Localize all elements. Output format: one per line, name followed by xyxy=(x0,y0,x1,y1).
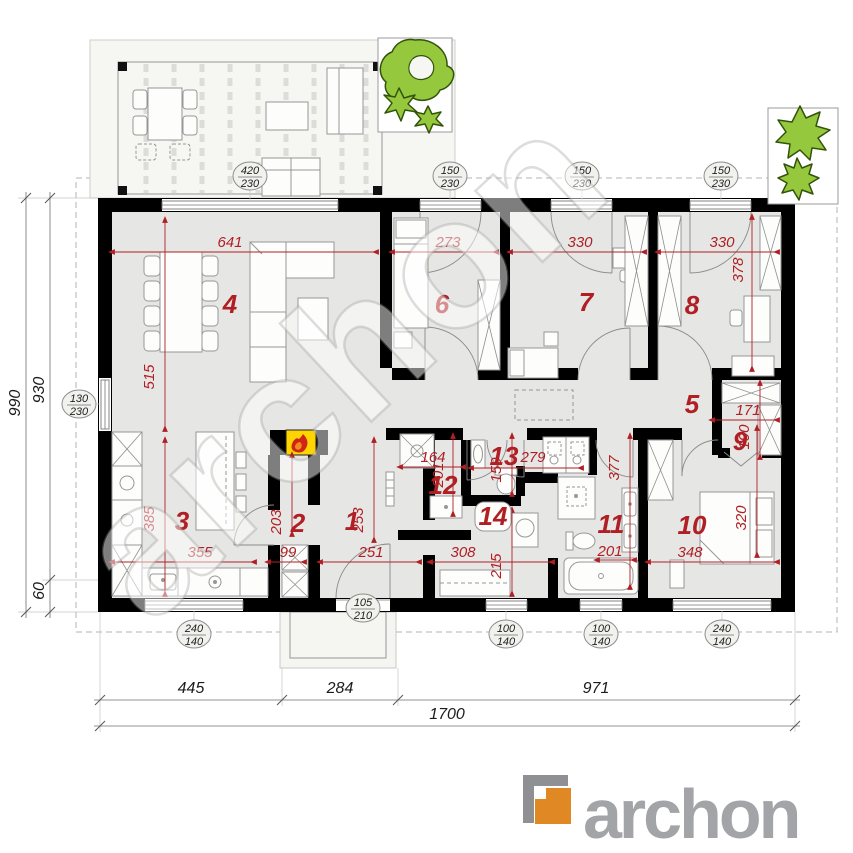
tag-240-140-b: 240140 xyxy=(705,611,739,648)
dim-215: 215 xyxy=(488,553,505,580)
floor-plan-canvas: 641 515 273 330 330 378 385 355 99 251 2… xyxy=(0,0,853,853)
dim-308: 308 xyxy=(450,544,476,561)
wardrobe-room8b xyxy=(760,216,781,290)
room-label-10: 10 xyxy=(678,510,707,540)
chain-total: 1700 xyxy=(94,706,800,731)
window-420-living xyxy=(162,199,338,211)
chain-445: 445 xyxy=(178,680,205,697)
chain-990: 990 xyxy=(7,390,24,417)
dim-515: 515 xyxy=(141,364,158,390)
room-label-7: 7 xyxy=(579,287,595,317)
tag-105-210: 105210 xyxy=(346,594,380,622)
room-label-8: 8 xyxy=(685,290,700,320)
room-label-14: 14 xyxy=(479,501,508,531)
logo-wordmark: archon xyxy=(583,775,798,853)
room-label-9: 9 xyxy=(733,426,748,456)
svg-text:230: 230 xyxy=(711,178,731,190)
chain-bottom: 445 284 971 xyxy=(94,680,800,705)
radiator-room12 xyxy=(386,472,394,506)
archon-logo: archon xyxy=(523,775,798,853)
svg-text:210: 210 xyxy=(353,610,373,622)
tag-150-230-c: 150230 xyxy=(704,162,738,200)
svg-text:130: 130 xyxy=(70,393,89,405)
entrance-porch xyxy=(280,612,396,668)
dim-641: 641 xyxy=(217,234,242,251)
dim-279: 279 xyxy=(519,449,546,466)
chain-left: 990 930 60 xyxy=(7,192,55,618)
dim-378: 378 xyxy=(730,257,747,283)
room-label-5: 5 xyxy=(685,389,700,419)
tree-top xyxy=(378,38,454,133)
svg-text:140: 140 xyxy=(497,636,516,648)
dim-171: 171 xyxy=(735,402,760,419)
room-label-1: 1 xyxy=(345,506,359,536)
chain-930: 930 xyxy=(31,377,48,404)
window-240-room10 xyxy=(673,599,771,611)
window-150-room8 xyxy=(690,199,751,211)
window-100-room11 xyxy=(580,599,622,611)
chain-971: 971 xyxy=(583,680,610,697)
wardrobe-room8a xyxy=(658,216,681,326)
svg-text:140: 140 xyxy=(713,636,732,648)
room-label-13: 13 xyxy=(490,441,519,471)
dim-330-room8: 330 xyxy=(709,234,735,251)
chain-284: 284 xyxy=(326,680,354,697)
dim-348: 348 xyxy=(677,544,703,561)
dim-377: 377 xyxy=(606,455,623,481)
svg-text:420: 420 xyxy=(241,165,260,177)
svg-text:150: 150 xyxy=(712,165,731,177)
room-label-11: 11 xyxy=(598,509,625,539)
svg-text:230: 230 xyxy=(240,178,260,190)
washbasin-room13 xyxy=(471,440,485,468)
tag-130-230: 130230 xyxy=(62,390,100,418)
svg-text:100: 100 xyxy=(592,623,611,635)
toilet-room11 xyxy=(566,532,595,550)
room-label-14-box: 14 xyxy=(475,501,511,531)
tag-100-140-a: 100140 xyxy=(489,611,523,648)
svg-text:230: 230 xyxy=(69,406,89,418)
window-130-left xyxy=(99,378,111,431)
room-label-4: 4 xyxy=(222,289,238,319)
svg-text:140: 140 xyxy=(592,636,611,648)
window-100-room14 xyxy=(486,599,527,611)
room-label-12: 12 xyxy=(429,470,458,500)
dim-251: 251 xyxy=(357,544,383,561)
water-heater-room14 xyxy=(512,513,538,547)
washbasin-cabinet-room11 xyxy=(558,477,595,519)
svg-text:240: 240 xyxy=(712,623,732,635)
tree-right xyxy=(768,106,838,204)
dim-320: 320 xyxy=(733,505,750,531)
svg-text:105: 105 xyxy=(354,597,373,609)
bathtub-room11 xyxy=(564,558,638,594)
svg-text:100: 100 xyxy=(497,623,516,635)
dim-201-room11: 201 xyxy=(596,543,622,560)
tag-100-140-b: 100140 xyxy=(584,611,618,648)
chain-60: 60 xyxy=(31,582,48,600)
wardrobe-room9b xyxy=(758,405,781,455)
chain-1700: 1700 xyxy=(429,706,465,723)
wardrobe-room9a xyxy=(722,383,780,403)
floor-plan-drawing: 641 515 273 330 330 378 385 355 99 251 2… xyxy=(0,0,853,853)
wardrobe-room10 xyxy=(648,440,673,500)
